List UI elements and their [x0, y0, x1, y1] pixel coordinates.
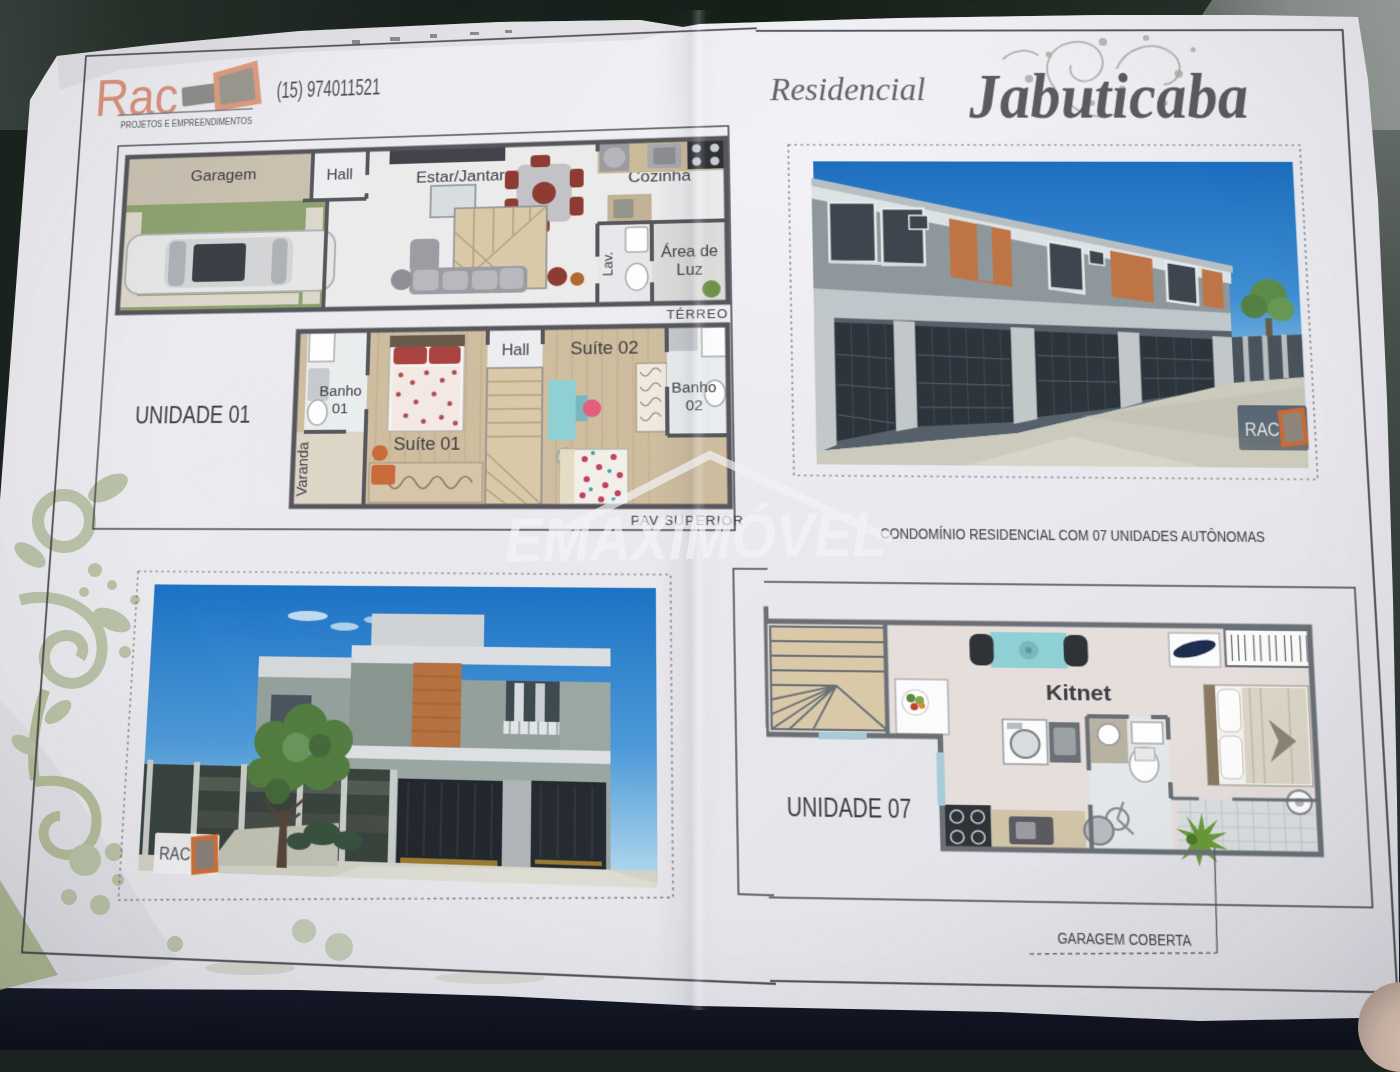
- svg-text:EMAXIMÓVEL: EMAXIMÓVEL: [504, 500, 887, 576]
